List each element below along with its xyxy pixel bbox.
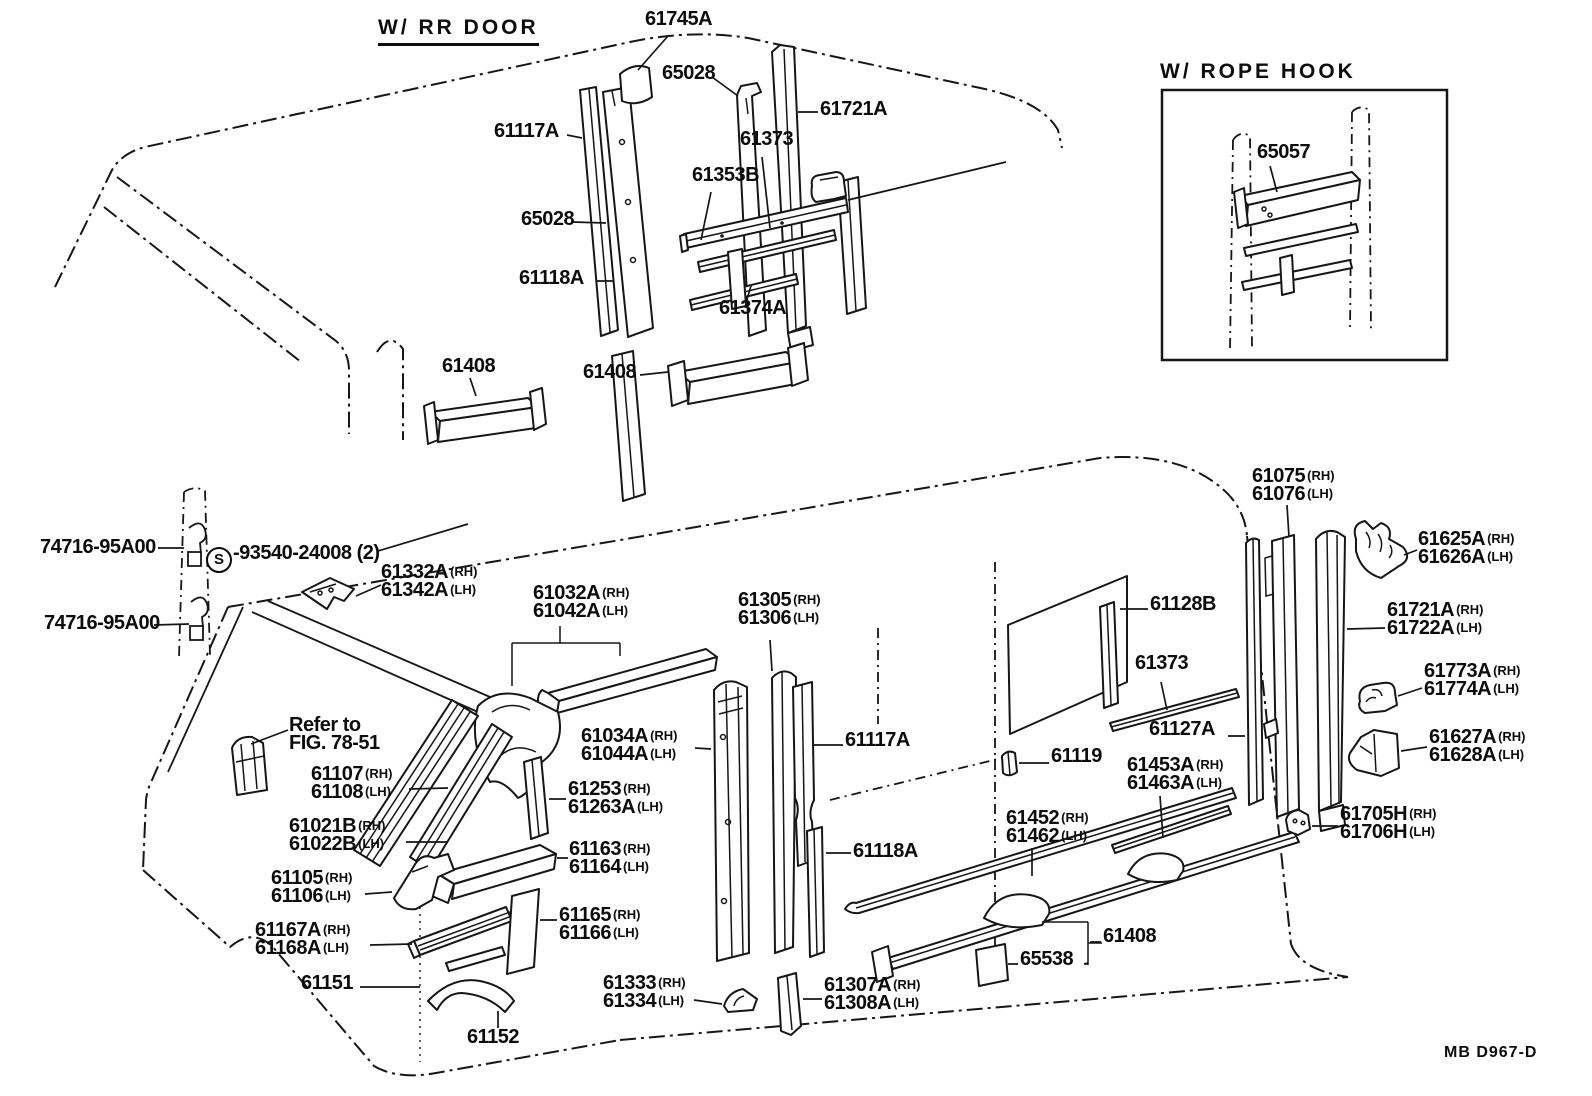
part-number: -93540-24008 (2) bbox=[233, 542, 380, 564]
side-indicator: (RH) bbox=[658, 975, 685, 990]
part-label-61453A: 61453A(RH)61463A(LH) bbox=[1127, 756, 1224, 792]
side-indicator: (LH) bbox=[323, 940, 349, 955]
side-indicator: (LH) bbox=[1409, 824, 1435, 839]
side-indicator: (LH) bbox=[1456, 620, 1482, 635]
part-label-61075: 61075(RH)61076(LH) bbox=[1252, 467, 1335, 503]
part-label-row: 61408 bbox=[583, 363, 636, 381]
side-indicator: (RH) bbox=[1498, 729, 1525, 744]
side-indicator: (RH) bbox=[1196, 757, 1223, 772]
part-label-61408-mid: 61408 bbox=[583, 363, 636, 381]
part-label-61452: 61452(RH)61462(LH) bbox=[1006, 809, 1089, 845]
part-label-row: 74716-95A00 bbox=[40, 538, 156, 556]
side-indicator: (LH) bbox=[358, 836, 384, 851]
part-label-row: 61108(LH) bbox=[311, 783, 392, 801]
part-label-61305: 61305(RH)61306(LH) bbox=[738, 591, 821, 627]
side-indicator: (RH) bbox=[450, 564, 477, 579]
part-number: 61044A bbox=[581, 743, 648, 765]
side-indicator: (RH) bbox=[613, 907, 640, 922]
part-number: 61127A bbox=[1149, 718, 1215, 740]
part-label-65028-side: 65028 bbox=[521, 210, 574, 228]
side-indicator: (RH) bbox=[1307, 468, 1334, 483]
part-label-row: 61166(LH) bbox=[559, 924, 640, 942]
side-indicator: (LH) bbox=[613, 925, 639, 940]
part-label-61107: 61107(RH)61108(LH) bbox=[311, 765, 392, 801]
part-number: 61108 bbox=[311, 781, 363, 803]
standard-part-symbol: S bbox=[206, 547, 232, 573]
part-number: 61626A bbox=[1418, 546, 1485, 568]
part-number: 61166 bbox=[559, 922, 611, 944]
side-indicator: (LH) bbox=[637, 799, 663, 814]
side-indicator: (LH) bbox=[658, 993, 684, 1008]
part-number: 61164 bbox=[569, 856, 621, 878]
side-indicator: (LH) bbox=[602, 603, 628, 618]
part-number: 61353B bbox=[692, 164, 759, 186]
part-label-row: 61774A(LH) bbox=[1424, 680, 1521, 698]
part-number: 61721A bbox=[820, 98, 887, 120]
part-label-61721A-top: 61721A bbox=[820, 100, 887, 118]
part-number: 61373 bbox=[740, 128, 793, 150]
part-label-row: 65028 bbox=[521, 210, 574, 228]
part-label-65057: 65057 bbox=[1257, 143, 1310, 161]
corner-gusset-61745A bbox=[620, 66, 652, 103]
part-number: 61118A bbox=[853, 840, 918, 862]
rope-hook-box bbox=[1162, 90, 1447, 360]
part-label-61408-rocker: 61408 bbox=[1103, 927, 1156, 945]
side-indicator: (LH) bbox=[450, 582, 476, 597]
part-label-row: 65057 bbox=[1257, 143, 1310, 161]
rope-hook-inset-art bbox=[1162, 90, 1447, 360]
side-indicator: (RH) bbox=[893, 977, 920, 992]
part-label-61119: 61119 bbox=[1051, 747, 1102, 765]
part-label-61721A-rear: 61721A(RH)61722A(LH) bbox=[1387, 601, 1484, 637]
part-number: 61462 bbox=[1006, 825, 1059, 847]
part-label-61118A-top: 61118A bbox=[519, 269, 584, 287]
part-label-61408-front: 61408 bbox=[442, 357, 495, 375]
part-number: FIG. 78-51 bbox=[289, 732, 380, 754]
part-label-row: 61151 bbox=[301, 974, 353, 992]
part-label-row: 61745A bbox=[645, 10, 712, 28]
part-label-row: 61106(LH) bbox=[271, 887, 352, 905]
part-number: 61042A bbox=[533, 600, 600, 622]
part-label-row: 61626A(LH) bbox=[1418, 548, 1515, 566]
part-label-61021B: 61021B(RH)61022B(LH) bbox=[289, 817, 386, 853]
part-label-row: 74716-95A00 bbox=[44, 614, 160, 632]
part-label-61627A: 61627A(RH)61628A(LH) bbox=[1429, 728, 1526, 764]
part-label-row: S-93540-24008 (2) bbox=[206, 544, 380, 562]
part-number: 61308A bbox=[824, 992, 891, 1014]
part-label-61773A: 61773A(RH)61774A(LH) bbox=[1424, 662, 1521, 698]
part-label-refer-fig: Refer toFIG. 78-51 bbox=[289, 716, 380, 752]
part-label-row: 61022B(LH) bbox=[289, 835, 386, 853]
part-number: 65538 bbox=[1020, 948, 1073, 970]
part-label-row: 61462(LH) bbox=[1006, 827, 1089, 845]
section-title-rope-hook: W/ ROPE HOOK bbox=[1160, 60, 1356, 84]
part-number: 61152 bbox=[467, 1026, 519, 1048]
side-indicator: (LH) bbox=[1487, 549, 1513, 564]
part-label-61032A: 61032A(RH)61042A(LH) bbox=[533, 584, 630, 620]
part-label-row: 61127A bbox=[1149, 720, 1215, 738]
part-number: 61263A bbox=[568, 796, 635, 818]
part-label-row: FIG. 78-51 bbox=[289, 734, 380, 752]
side-indicator: (LH) bbox=[1307, 486, 1333, 501]
part-label-row: 61373 bbox=[740, 130, 793, 148]
part-label-61034A: 61034A(RH)61044A(LH) bbox=[581, 727, 678, 763]
part-label-61165: 61165(RH)61166(LH) bbox=[559, 906, 640, 942]
part-label-row: 61722A(LH) bbox=[1387, 619, 1484, 637]
part-label-row: 61628A(LH) bbox=[1429, 746, 1526, 764]
part-label-61127A: 61127A bbox=[1149, 720, 1215, 738]
part-label-row: 61118A bbox=[519, 269, 584, 287]
part-number: 61628A bbox=[1429, 744, 1496, 766]
part-label-row: 61152 bbox=[467, 1028, 519, 1046]
rear-pillar-parts-art bbox=[1246, 521, 1407, 835]
part-number: 65028 bbox=[521, 208, 574, 230]
part-label-65028-top: 65028 bbox=[662, 64, 715, 82]
part-label-61167A: 61167A(RH)61168A(LH) bbox=[255, 921, 350, 957]
part-number: 61022B bbox=[289, 833, 356, 855]
side-indicator: (RH) bbox=[602, 585, 629, 600]
part-number: 74716-95A00 bbox=[40, 536, 156, 558]
part-label-61705H: 61705H(RH)61706H(LH) bbox=[1340, 805, 1437, 841]
side-indicator: (RH) bbox=[1061, 810, 1088, 825]
part-label-row: 61042A(LH) bbox=[533, 602, 630, 620]
part-number: 61151 bbox=[301, 972, 353, 994]
side-indicator: (RH) bbox=[623, 841, 650, 856]
part-label-61163: 61163(RH)61164(LH) bbox=[569, 840, 650, 876]
side-indicator: (LH) bbox=[325, 888, 351, 903]
side-indicator: (RH) bbox=[358, 818, 385, 833]
part-number: 61306 bbox=[738, 607, 791, 629]
part-label-61118A-low: 61118A bbox=[853, 842, 918, 860]
part-number: 61076 bbox=[1252, 483, 1305, 505]
part-label-row: 61373 bbox=[1135, 654, 1188, 672]
part-label-61117A-top: 61117A bbox=[494, 122, 559, 140]
part-label-row: 61119 bbox=[1051, 747, 1102, 765]
part-label-row: 61721A bbox=[820, 100, 887, 118]
part-number: 74716-95A00 bbox=[44, 612, 160, 634]
side-indicator: (LH) bbox=[1493, 681, 1519, 696]
side-indicator: (LH) bbox=[623, 859, 649, 874]
side-indicator: (RH) bbox=[365, 766, 392, 781]
part-label-61625A: 61625A(RH)61626A(LH) bbox=[1418, 530, 1515, 566]
part-number: 61722A bbox=[1387, 617, 1454, 639]
part-number: 61106 bbox=[271, 885, 323, 907]
side-indicator: (RH) bbox=[650, 728, 677, 743]
parts-diagram-page: W/ RR DOOR W/ ROPE HOOK MB D967-D 61745A… bbox=[0, 0, 1592, 1096]
part-label-row: 61408 bbox=[1103, 927, 1156, 945]
part-label-row: 61408 bbox=[442, 357, 495, 375]
side-indicator: (RH) bbox=[1456, 602, 1483, 617]
side-indicator: (RH) bbox=[1487, 531, 1514, 546]
part-label-61151: 61151 bbox=[301, 974, 353, 992]
part-number: 61119 bbox=[1051, 745, 1102, 767]
part-label-row: 61334(LH) bbox=[603, 992, 686, 1010]
part-number: 61774A bbox=[1424, 678, 1491, 700]
part-label-74716-lower: 74716-95A00 bbox=[44, 614, 160, 632]
upper-pillar-parts-art bbox=[424, 45, 1006, 501]
part-number: 61408 bbox=[442, 355, 495, 377]
part-number: 61373 bbox=[1135, 652, 1188, 674]
part-label-61307A: 61307A(RH)61308A(LH) bbox=[824, 976, 921, 1012]
part-label-row: 61168A(LH) bbox=[255, 939, 350, 957]
part-label-61353B: 61353B bbox=[692, 166, 759, 184]
part-number: 61745A bbox=[645, 8, 712, 30]
part-number: 61342A bbox=[381, 579, 448, 601]
side-indicator: (RH) bbox=[623, 781, 650, 796]
part-label-74716-upper: 74716-95A00 bbox=[40, 538, 156, 556]
section-title-rr-door: W/ RR DOOR bbox=[378, 16, 539, 46]
side-indicator: (LH) bbox=[893, 995, 919, 1010]
part-number: 65057 bbox=[1257, 141, 1310, 163]
side-indicator: (RH) bbox=[323, 922, 350, 937]
part-number: 61408 bbox=[1103, 925, 1156, 947]
side-indicator: (RH) bbox=[1493, 663, 1520, 678]
figure-code: MB D967-D bbox=[1444, 1044, 1537, 1062]
part-label-row: 61706H(LH) bbox=[1340, 823, 1437, 841]
part-label-row: 61044A(LH) bbox=[581, 745, 678, 763]
part-label-row: 61353B bbox=[692, 166, 759, 184]
roof-outline-art bbox=[55, 34, 1062, 440]
part-number: 61706H bbox=[1340, 821, 1407, 843]
part-label-61373-top: 61373 bbox=[740, 130, 793, 148]
part-label-row: 61263A(LH) bbox=[568, 798, 663, 816]
part-number: 61334 bbox=[603, 990, 656, 1012]
side-indicator: (RH) bbox=[325, 870, 352, 885]
part-label-row: 61128B bbox=[1150, 595, 1216, 613]
part-number: 61117A bbox=[845, 729, 910, 751]
part-label-61152: 61152 bbox=[467, 1028, 519, 1046]
part-label-row: 61374A bbox=[719, 299, 786, 317]
part-label-row: 61342A(LH) bbox=[381, 581, 478, 599]
part-number: 61168A bbox=[255, 937, 321, 959]
part-label-61373-rear: 61373 bbox=[1135, 654, 1188, 672]
part-number: 61128B bbox=[1150, 593, 1216, 615]
part-label-row: 61117A bbox=[845, 731, 910, 749]
part-label-61332A: 61332A(RH)61342A(LH) bbox=[381, 563, 478, 599]
part-number: 61118A bbox=[519, 267, 584, 289]
part-label-61374A: 61374A bbox=[719, 299, 786, 317]
part-label-61333: 61333(RH)61334(LH) bbox=[603, 974, 686, 1010]
part-label-row: 61117A bbox=[494, 122, 559, 140]
part-label-row: 61306(LH) bbox=[738, 609, 821, 627]
part-label-row: 61076(LH) bbox=[1252, 485, 1335, 503]
part-label-61128B: 61128B bbox=[1150, 595, 1216, 613]
side-indicator: (LH) bbox=[1061, 828, 1087, 843]
part-number: 61408 bbox=[583, 361, 636, 383]
side-indicator: (LH) bbox=[793, 610, 819, 625]
part-label-65538: 65538 bbox=[1020, 950, 1073, 968]
side-indicator: (LH) bbox=[650, 746, 676, 761]
part-label-row: 61463A(LH) bbox=[1127, 774, 1224, 792]
part-label-61253: 61253(RH)61263A(LH) bbox=[568, 780, 663, 816]
part-label-row: 65028 bbox=[662, 64, 715, 82]
part-label-93540: S-93540-24008 (2) bbox=[206, 544, 380, 562]
side-indicator: (LH) bbox=[365, 784, 391, 799]
part-label-61105: 61105(RH)61106(LH) bbox=[271, 869, 352, 905]
side-indicator: (RH) bbox=[1409, 806, 1436, 821]
side-indicator: (RH) bbox=[793, 592, 820, 607]
part-label-row: 61308A(LH) bbox=[824, 994, 921, 1012]
part-label-row: 61118A bbox=[853, 842, 918, 860]
part-label-row: 61164(LH) bbox=[569, 858, 650, 876]
part-label-row: 65538 bbox=[1020, 950, 1073, 968]
side-indicator: (LH) bbox=[1196, 775, 1222, 790]
part-number: 61117A bbox=[494, 120, 559, 142]
part-label-61745A: 61745A bbox=[645, 10, 712, 28]
part-number: 61374A bbox=[719, 297, 786, 319]
part-label-61117A-low: 61117A bbox=[845, 731, 910, 749]
part-number: 65028 bbox=[662, 62, 715, 84]
side-indicator: (LH) bbox=[1498, 747, 1524, 762]
part-number: 61463A bbox=[1127, 772, 1194, 794]
lower-body-parts-art bbox=[232, 578, 1299, 1035]
